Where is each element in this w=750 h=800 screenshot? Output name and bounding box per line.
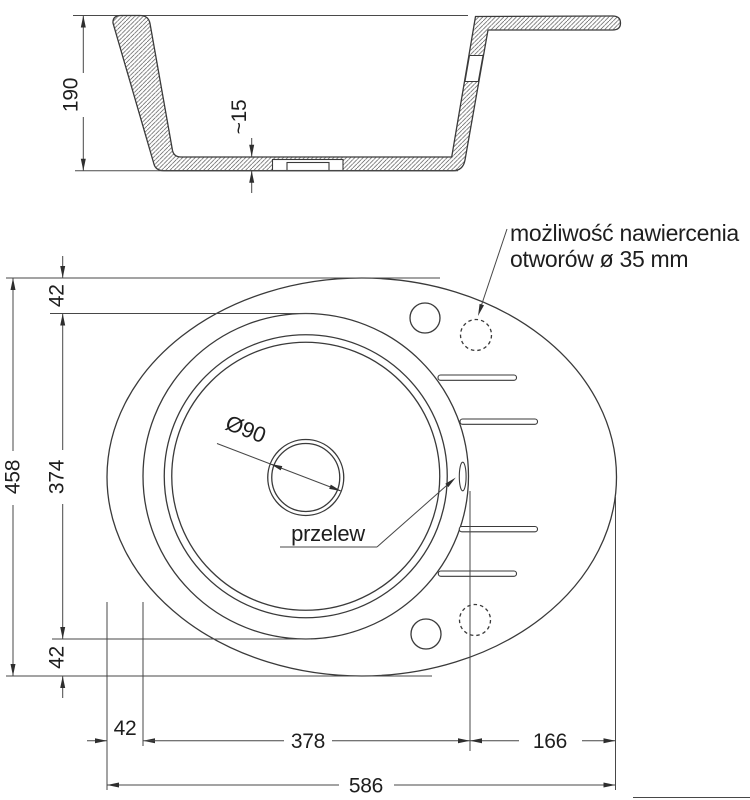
drill-note-callout: możliwość nawiercenia otworów ø 35 mm <box>478 220 739 316</box>
overflow-slot <box>459 462 466 491</box>
optional-hole-bottom <box>460 605 491 636</box>
dim-bottom-margin: 42 <box>46 646 69 698</box>
dim-floor-thickness: ~15 <box>228 100 254 193</box>
dim-drainer-width: 166 <box>470 730 616 753</box>
dim-bowl-height: 374 <box>46 314 69 640</box>
dim-drain-diameter-label: Ø90 <box>222 410 269 448</box>
bowl-rim-circle <box>143 314 469 640</box>
dim-total-height-label: 458 <box>2 460 25 494</box>
drill-note-line2: otworów ø 35 mm <box>510 246 688 272</box>
dim-bowl-width-label: 378 <box>291 730 325 753</box>
left-dimensions: 458 42 374 42 <box>2 256 441 698</box>
dim-section-height: 190 <box>60 16 86 171</box>
groove-4 <box>438 571 516 576</box>
groove-2 <box>460 419 538 424</box>
dim-floor-thickness-label: ~15 <box>228 100 251 135</box>
plan-view: Ø90 przelew możliwość nawiercenia otworó… <box>107 220 739 676</box>
faucet-hole-top <box>410 303 440 333</box>
dim-left-margin: 42 <box>87 717 155 743</box>
dim-left-margin-label: 42 <box>114 717 137 740</box>
overflow-callout: przelew <box>280 478 456 548</box>
dim-section-height-label: 190 <box>60 78 83 112</box>
dim-total-width: 586 <box>107 775 616 798</box>
dim-total-height: 458 <box>2 278 25 676</box>
drill-note-line1: możliwość nawiercenia <box>510 220 739 246</box>
dim-bottom-margin-label: 42 <box>46 646 69 669</box>
bowl-inner-circle-2 <box>172 342 440 610</box>
groove-1 <box>438 375 517 380</box>
sink-outline <box>107 278 617 676</box>
optional-hole-top <box>461 320 492 351</box>
groove-3 <box>459 527 537 532</box>
technical-drawing-sink: 190 ~15 <box>0 0 750 800</box>
section-drain-recess-inner <box>287 163 329 171</box>
section-view: 190 ~15 <box>60 16 621 194</box>
dim-top-margin-label: 42 <box>46 284 69 307</box>
overflow-label: przelew <box>291 521 365 546</box>
dim-top-margin: 42 <box>46 256 69 307</box>
section-body <box>113 16 621 171</box>
drawing-canvas: 190 ~15 <box>0 0 750 800</box>
dim-bowl-width: 378 <box>143 730 470 753</box>
dim-bowl-height-label: 374 <box>46 459 69 494</box>
dim-drainer-width-label: 166 <box>533 730 567 753</box>
faucet-hole-bottom <box>411 619 441 649</box>
dim-total-width-label: 586 <box>349 775 383 798</box>
bowl-inner-circle-1 <box>164 335 447 618</box>
